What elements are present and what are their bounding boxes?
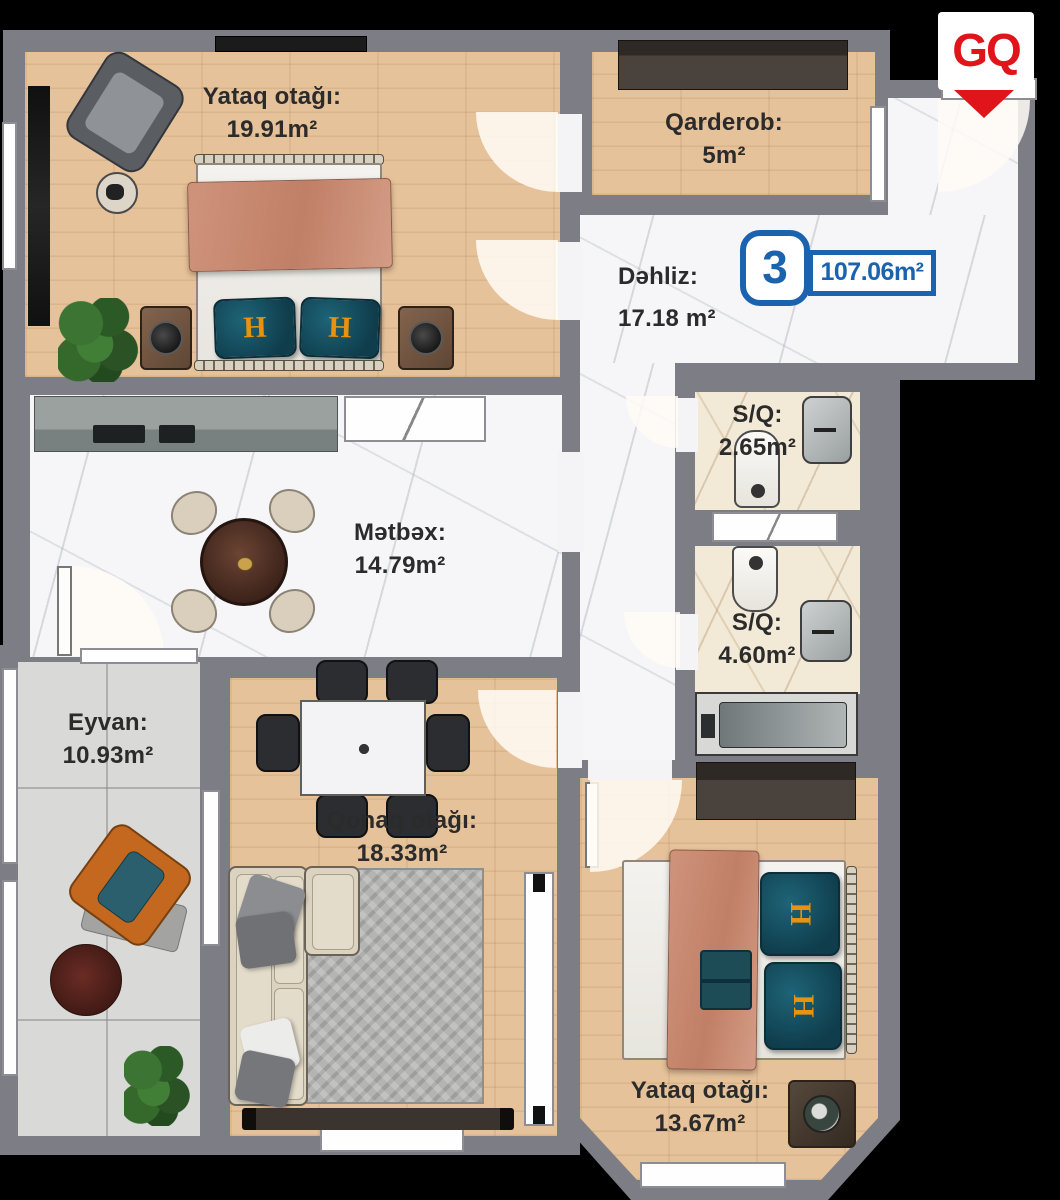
closet-bedroom2 bbox=[696, 762, 856, 820]
room-label-balcony: Eyvan: 10.93m² bbox=[18, 706, 198, 772]
balcony-living-window bbox=[202, 790, 220, 946]
unit-total-area-badge: 107.06m² bbox=[808, 250, 936, 296]
sofa-pillow-gray-3 bbox=[233, 1049, 296, 1109]
unit-number-badge: 3 bbox=[740, 230, 810, 306]
passage-bedroom1-a bbox=[556, 114, 582, 192]
bed2-headboard bbox=[846, 866, 857, 1054]
bathtub-basin bbox=[719, 702, 847, 748]
lamp-icon bbox=[149, 321, 183, 355]
bed1-pillow-left: H bbox=[213, 297, 297, 360]
bed1-blanket bbox=[187, 178, 393, 272]
flush-button-icon bbox=[749, 556, 763, 570]
pillow-monogram: H bbox=[761, 969, 845, 1043]
ottoman-divider bbox=[702, 979, 750, 983]
window-bedroom1-left bbox=[2, 122, 17, 270]
chair-living-n1 bbox=[316, 660, 368, 704]
room-area: 18.33m² bbox=[252, 837, 552, 870]
room-area: 4.60m² bbox=[692, 639, 822, 672]
toilet-bath-large bbox=[732, 546, 778, 612]
balcony-window-left-a bbox=[2, 668, 18, 864]
chair-living-e bbox=[426, 714, 470, 772]
dining-table-living bbox=[300, 700, 426, 796]
passage-bedroom2 bbox=[588, 760, 672, 780]
room-name: Mətbəx: bbox=[250, 516, 550, 549]
room-area: 19.91m² bbox=[122, 113, 422, 146]
sofa-pillow-gray-2 bbox=[235, 910, 298, 969]
passage-bedroom1-b bbox=[556, 242, 582, 320]
chaise-cushion bbox=[312, 874, 354, 950]
lamp-icon bbox=[409, 321, 443, 355]
room-label-bathroom-small: S/Q: 2.65m² bbox=[695, 398, 820, 464]
room-name: S/Q: bbox=[695, 398, 820, 431]
room-name: Yataq otağı: bbox=[550, 1074, 850, 1107]
kitchen-sink-cabinet bbox=[344, 396, 486, 442]
bathtub-faucet-icon bbox=[701, 714, 715, 738]
gq-logo: GQ bbox=[938, 12, 1034, 90]
nightstand-bedroom1-left bbox=[140, 306, 192, 370]
pillow-monogram: H bbox=[301, 299, 379, 358]
kitchen-door-leaf bbox=[57, 566, 72, 656]
panel-handle-bottom-icon bbox=[533, 1106, 545, 1124]
room-name: S/Q: bbox=[692, 606, 822, 639]
panel-handle-top-icon bbox=[533, 874, 545, 892]
room-label-bedroom-1: Yataq otağı: 19.91m² bbox=[122, 80, 422, 146]
balcony-door-threshold bbox=[80, 648, 198, 664]
balcony-round-rug bbox=[50, 944, 122, 1016]
plant-balcony bbox=[124, 1046, 190, 1126]
side-table-bedroom1 bbox=[96, 172, 138, 214]
living-bottom-window bbox=[320, 1128, 464, 1152]
logo-arrow-down-icon bbox=[954, 90, 1014, 118]
oven-icon bbox=[159, 425, 195, 443]
chair-living-n2 bbox=[386, 660, 438, 704]
sofa-chaise bbox=[304, 866, 360, 956]
balcony-window-left-b bbox=[2, 880, 18, 1076]
flush-button-icon bbox=[751, 484, 765, 498]
room-area: 10.93m² bbox=[18, 739, 198, 772]
pillow-monogram: H bbox=[760, 876, 840, 952]
room-name: Qonaq otağı: bbox=[252, 804, 552, 837]
chair-living-w bbox=[256, 714, 300, 772]
bed1-footboard bbox=[194, 360, 384, 371]
room-name: Qarderob: bbox=[594, 106, 854, 139]
bathtub bbox=[695, 692, 858, 756]
plant-bedroom1 bbox=[58, 298, 140, 382]
room-area: 17.18 m² bbox=[618, 298, 838, 340]
room-name: Eyvan: bbox=[18, 706, 198, 739]
bed1-pillow-right: H bbox=[299, 297, 381, 360]
tv-console bbox=[242, 1108, 514, 1130]
bedroom2-bottom-window bbox=[640, 1162, 786, 1188]
room-label-kitchen: Mətbəx: 14.79m² bbox=[250, 516, 550, 582]
passage-living-hall bbox=[558, 692, 582, 768]
room-label-bathroom-large: S/Q: 4.60m² bbox=[692, 606, 822, 672]
room-label-wardrobe: Qarderob: 5m² bbox=[594, 106, 854, 172]
passage-kitchen-hall bbox=[558, 452, 584, 552]
nightstand-bedroom1-right bbox=[398, 306, 454, 370]
room-area: 13.67m² bbox=[550, 1107, 850, 1140]
bed2-ottoman bbox=[700, 950, 752, 1010]
bath-divider-shelf bbox=[712, 512, 838, 542]
side-table-decor bbox=[106, 184, 124, 200]
room-area: 2.65m² bbox=[695, 431, 820, 464]
kitchen-counter bbox=[34, 396, 338, 452]
cooktop-icon bbox=[93, 425, 145, 443]
room-area: 5m² bbox=[594, 139, 854, 172]
pillow-monogram: H bbox=[215, 299, 295, 358]
room-label-bedroom-2: Yataq otağı: 13.67m² bbox=[550, 1074, 850, 1140]
window-bedroom1-top bbox=[215, 36, 367, 52]
table-vein-decor bbox=[352, 738, 376, 760]
closet-wardrobe-room bbox=[618, 40, 848, 90]
bed2-pillow-bottom: H bbox=[764, 962, 842, 1050]
room-name: Yataq otağı: bbox=[122, 80, 422, 113]
wardrobe-lobby-door bbox=[870, 106, 886, 202]
bed2-pillow-top: H bbox=[760, 872, 840, 956]
room-label-living-room: Qonaq otağı: 18.33m² bbox=[252, 804, 552, 870]
room-area: 14.79m² bbox=[250, 549, 550, 582]
wardrobe-strip-bedroom1 bbox=[28, 86, 50, 326]
floor-plan: H H bbox=[0, 0, 1060, 1200]
armchair-cushion bbox=[94, 848, 167, 926]
